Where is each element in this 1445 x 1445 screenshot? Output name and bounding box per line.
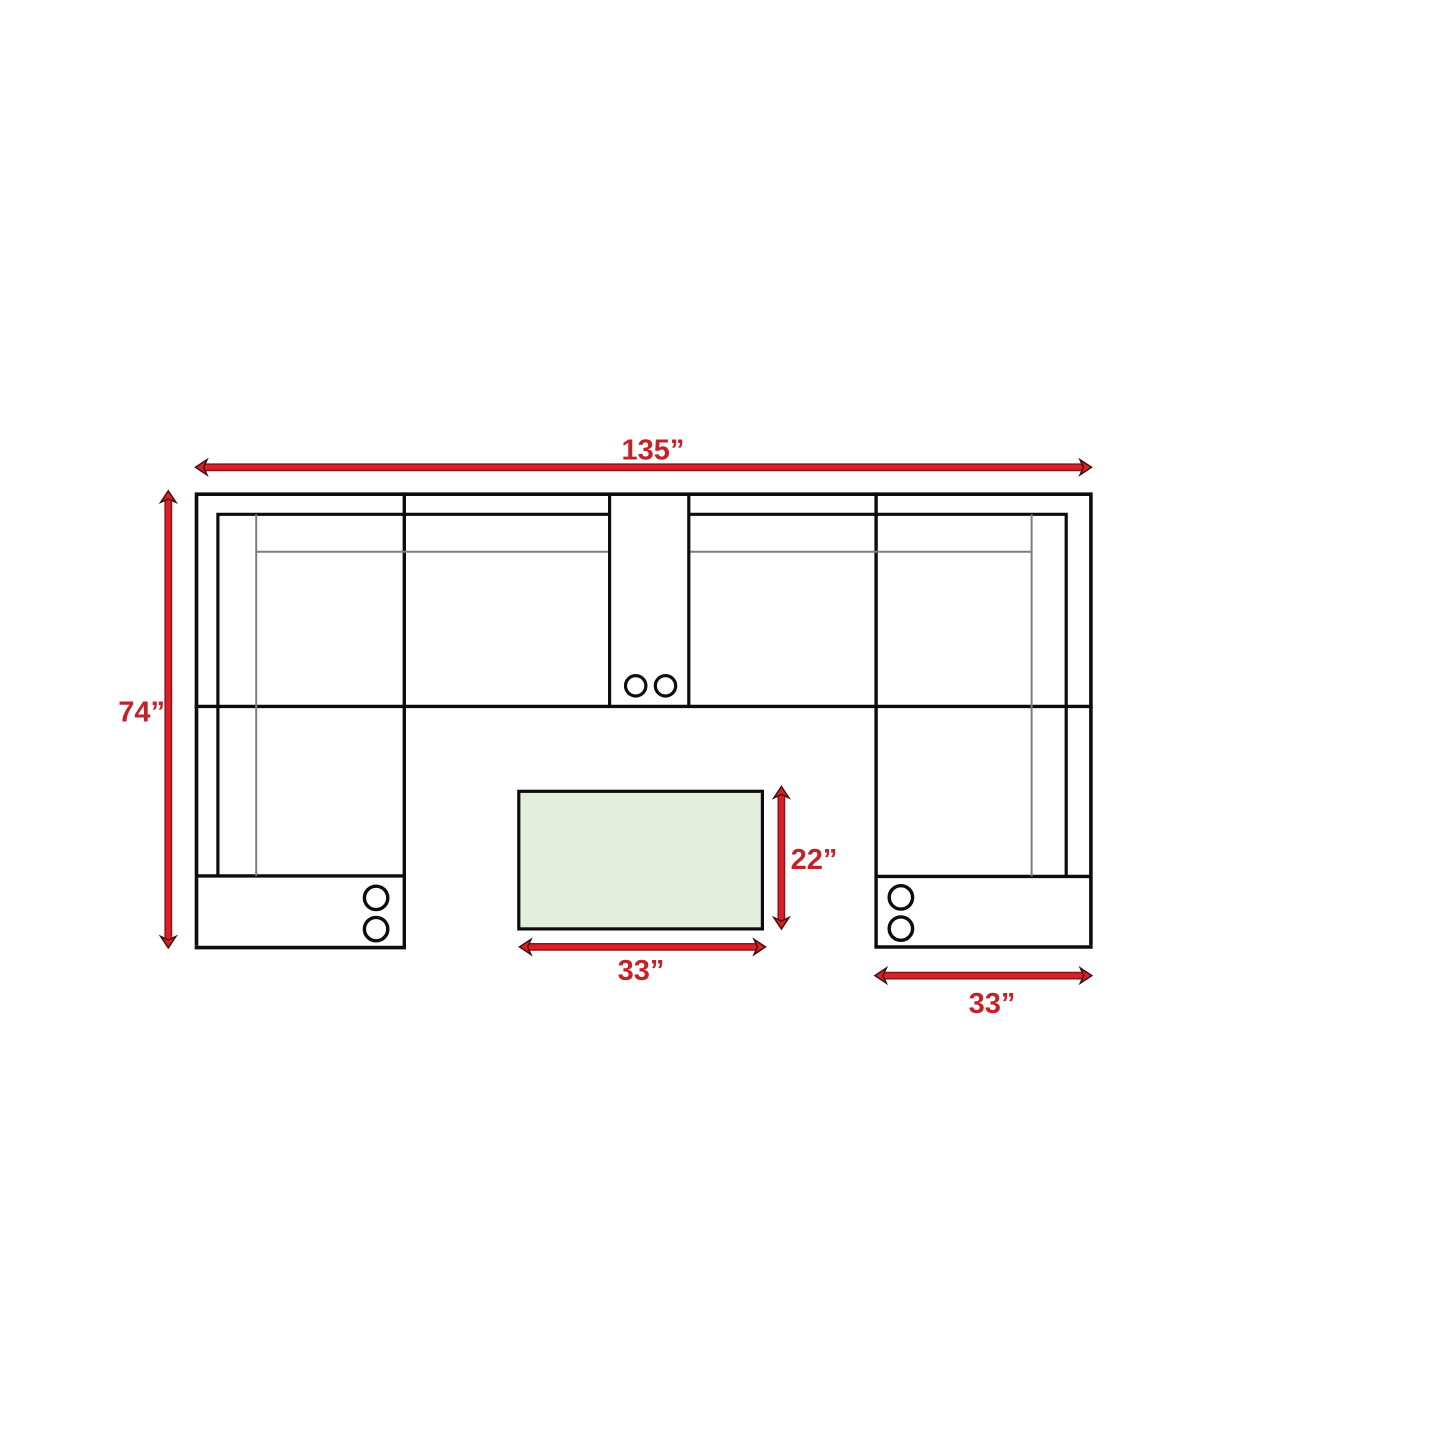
svg-text:33”: 33” bbox=[969, 988, 1016, 1020]
svg-text:135”: 135” bbox=[622, 435, 685, 467]
svg-text:33”: 33” bbox=[618, 955, 665, 987]
svg-text:22”: 22” bbox=[791, 844, 838, 876]
svg-text:74”: 74” bbox=[118, 697, 165, 729]
